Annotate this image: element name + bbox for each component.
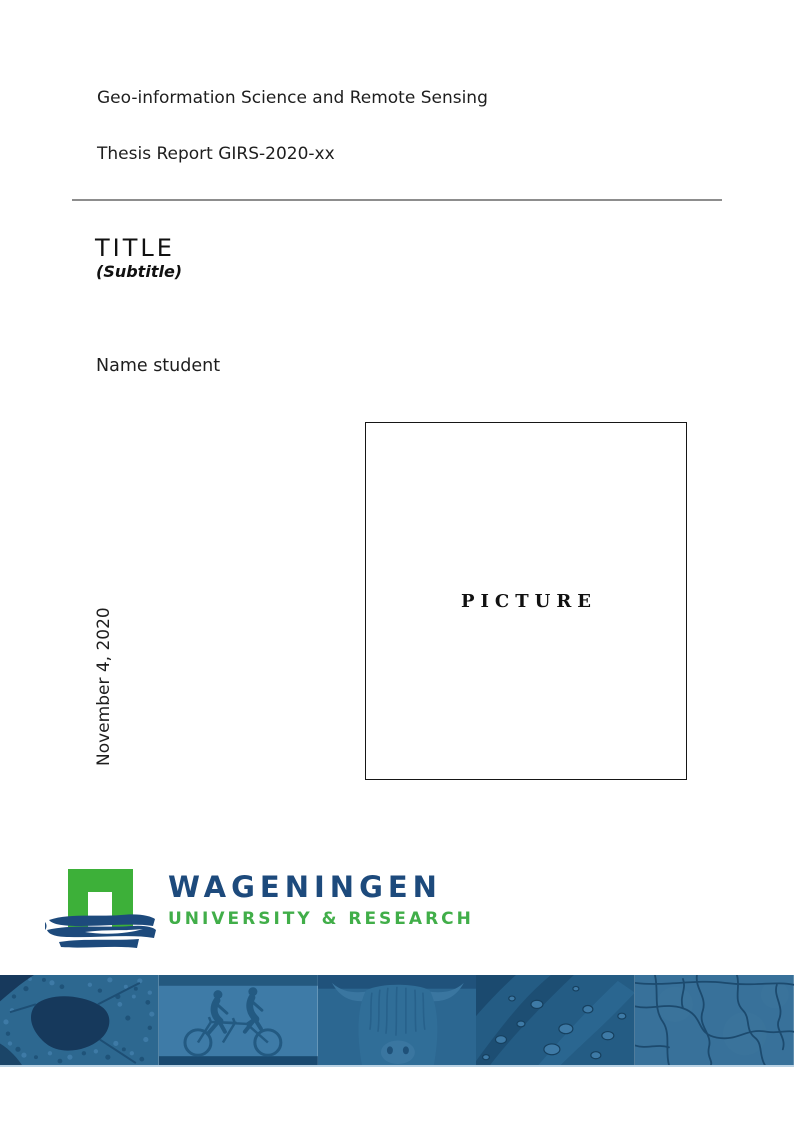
author-name: Name student bbox=[96, 356, 220, 376]
thesis-title: TITLE bbox=[95, 234, 175, 262]
aerial-landscape-photo bbox=[0, 975, 159, 1065]
leaf-water-droplets-photo bbox=[476, 975, 635, 1065]
wur-wordmark: WAGENINGEN bbox=[168, 872, 474, 902]
thesis-subtitle: (Subtitle) bbox=[96, 262, 182, 281]
divider-rule bbox=[72, 199, 722, 201]
thesis-cover-page: Geo-information Science and Remote Sensi… bbox=[0, 0, 794, 1123]
wur-tagline: UNIVERSITY & RESEARCH bbox=[168, 911, 474, 929]
report-number: Thesis Report GIRS-2020-xx bbox=[97, 144, 335, 164]
wur-logo-mark bbox=[45, 862, 160, 957]
picture-placeholder-label: PICTURE bbox=[455, 591, 597, 612]
tandem-cyclists-photo bbox=[159, 975, 318, 1065]
photo-banner bbox=[0, 975, 794, 1067]
program-name: Geo-information Science and Remote Sensi… bbox=[97, 88, 488, 108]
wur-logo-text: WAGENINGEN UNIVERSITY & RESEARCH bbox=[168, 872, 474, 929]
cracked-earth-photo bbox=[635, 975, 794, 1065]
thesis-date: November 4, 2020 bbox=[94, 607, 114, 766]
picture-placeholder-box: PICTURE bbox=[365, 422, 687, 780]
highland-cow-photo bbox=[318, 975, 477, 1065]
